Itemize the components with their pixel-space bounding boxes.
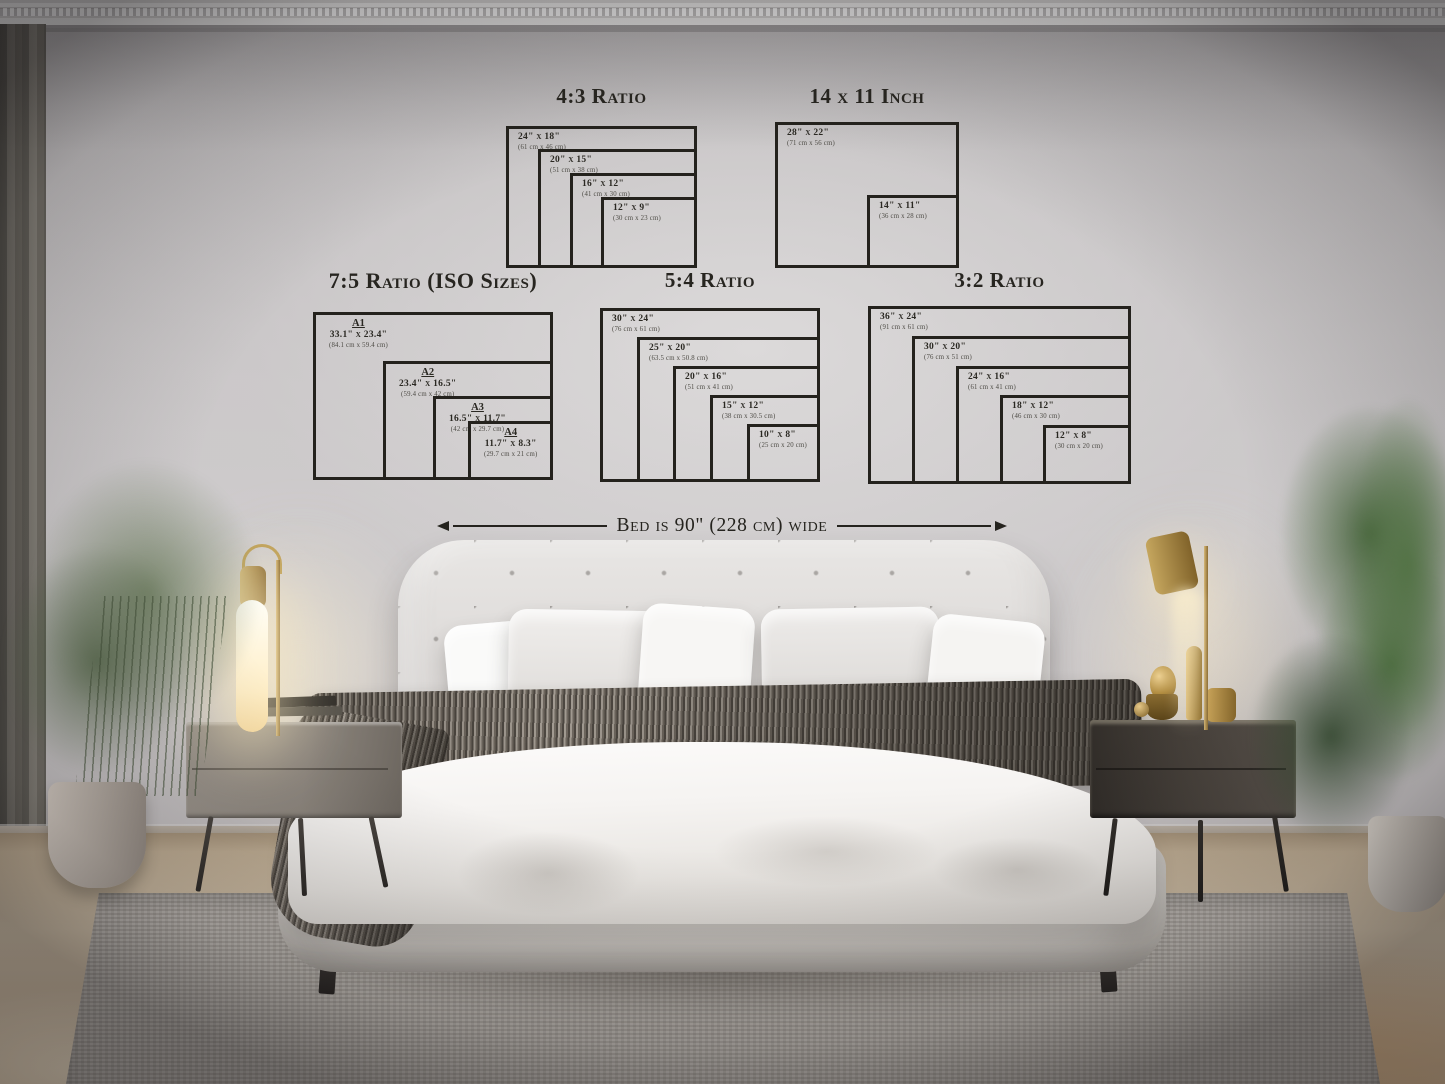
gold-decor-jar [1206,688,1236,722]
frame-metric: (71 cm x 56 cm) [787,140,835,148]
frame-metric: (36 cm x 28 cm) [879,213,927,221]
floor-lamp-left-pole [276,560,280,736]
size-frame: 10" x 8"(25 cm x 20 cm) [747,424,820,482]
frame-size: 14" x 11" [879,201,927,212]
frame-size: 12" x 8" [1055,431,1103,442]
frame-metric: (63.5 cm x 50.8 cm) [649,355,708,363]
bed-width-label: Bed is 90" (228 cm) wide [617,515,828,537]
frame-iso-label: A1 [329,318,388,330]
frame-iso-label: A4 [484,427,537,439]
frame-iso-label: A3 [449,402,506,414]
group-title-4-3: 4:3 Ratio [506,84,697,109]
group-title-5-4: 5:4 Ratio [600,268,820,293]
size-chart-14x11: 28" x 22" (71 cm x 56 cm) 14" x 11"(36 c… [775,122,959,268]
frame-label: 30" x 24" (76 cm x 61 cm) [612,314,660,334]
left-arrowhead-icon [437,521,449,531]
frame-size: 15" x 12" [722,401,775,412]
frame-label: 28" x 22" (71 cm x 56 cm) [787,128,835,148]
size-chart-4-3: 24" x 18" (61 cm x 46 cm) 20" x 15"(51 c… [506,126,697,268]
nightstand-left-drawer-line [192,768,388,770]
size-chart-7-5: A1 33.1" x 23.4" (84.1 cm x 59.4 cm) A22… [313,312,553,480]
size-frame: 12" x 8"(30 cm x 20 cm) [1043,425,1131,484]
floor-lamp-right-beam [1172,588,1202,736]
frame-iso-label: A2 [399,367,457,379]
frame-metric: (91 cm x 61 cm) [880,324,928,332]
group-title-7-5: 7:5 Ratio (ISO Sizes) [288,268,578,294]
plant-pot-right [1368,816,1445,912]
frame-size: 16" x 12" [582,179,630,190]
nightstand-leg [1198,820,1203,902]
size-frame: 14" x 11"(36 cm x 28 cm) [867,195,959,268]
bed-width-annotation: Bed is 90" (228 cm) wide [437,513,1007,539]
size-chart-3-2: 36" x 24" (91 cm x 61 cm) 30" x 20"(76 c… [868,306,1131,484]
frame-size: 24" x 18" [518,132,566,143]
frame-metric: (25 cm x 20 cm) [759,442,807,450]
group-title-14x11: 14 x 11 Inch [775,84,959,109]
arrow-line [453,525,607,528]
frame-metric: (30 cm x 23 cm) [613,215,661,223]
size-frame: A411.7" x 8.3"(29.7 cm x 21 cm) [468,421,553,480]
frame-size: 12" x 9" [613,203,661,214]
bedroom-scene: 4:3 Ratio 24" x 18" (61 cm x 46 cm) 20" … [0,0,1445,1084]
frame-label: A1 33.1" x 23.4" (84.1 cm x 59.4 cm) [329,318,388,350]
frame-metric: (51 cm x 41 cm) [685,384,733,392]
frame-size: 23.4" x 16.5" [399,379,457,390]
arrow-line [837,525,991,528]
plant-pot-left [48,782,146,888]
group-title-3-2: 3:2 Ratio [868,268,1131,293]
frame-metric: (76 cm x 51 cm) [924,354,972,362]
frame-size: 20" x 16" [685,372,733,383]
frame-size: 30" x 20" [924,342,972,353]
frame-metric: (76 cm x 61 cm) [612,326,660,334]
frame-size: 11.7" x 8.3" [484,439,537,450]
size-chart-5-4: 30" x 24" (76 cm x 61 cm) 25" x 20"(63.5… [600,308,820,482]
right-arrowhead-icon [995,521,1007,531]
floor-lamp-right-pole [1204,546,1208,730]
frame-size: 28" x 22" [787,128,835,139]
frame-metric: (84.1 cm x 59.4 cm) [329,342,388,350]
frame-size: 10" x 8" [759,430,807,441]
frame-metric: (61 cm x 41 cm) [968,384,1016,392]
crown-molding [0,0,1445,32]
frame-metric: (46 cm x 30 cm) [1012,413,1060,421]
frame-size: 20" x 15" [550,155,598,166]
frame-size: 25" x 20" [649,343,708,354]
size-frame: 12" x 9"(30 cm x 23 cm) [601,197,697,268]
frame-size: 24" x 16" [968,372,1016,383]
frame-size: 36" x 24" [880,312,928,323]
frame-size: 30" x 24" [612,314,660,325]
gold-decor-sphere [1134,702,1149,717]
frame-label: 36" x 24" (91 cm x 61 cm) [880,312,928,332]
frame-metric: (29.7 cm x 21 cm) [484,451,537,459]
frame-metric: (30 cm x 20 cm) [1055,443,1103,451]
frame-size: 18" x 12" [1012,401,1060,412]
frame-metric: (38 cm x 30.5 cm) [722,413,775,421]
nightstand-left [186,722,402,818]
frame-size: 33.1" x 23.4" [329,330,388,341]
